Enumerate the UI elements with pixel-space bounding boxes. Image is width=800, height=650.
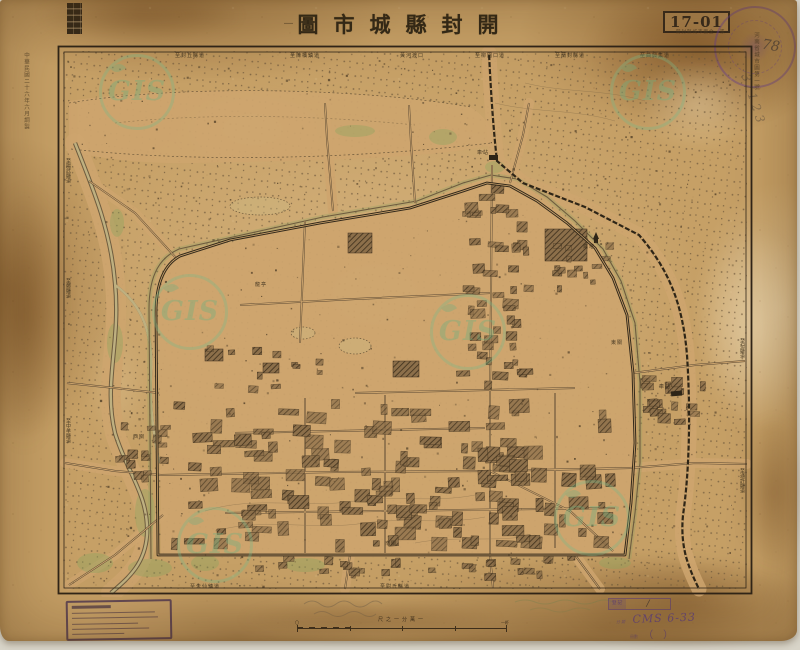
map-label: 至蘭封縣道 — [555, 52, 585, 59]
pencil-annotation-number: 78 — [761, 37, 781, 56]
catalog-row-label: 分類 — [616, 619, 626, 624]
map-canvas: 至封丘縣道至陳橋鎮道黃河渡口至柳園口道至蘭封縣道至曲興集道至陽武縣道至鄭縣道至中… — [55, 43, 755, 597]
map-label: 西關 — [133, 433, 145, 440]
map-label: 至柳園口道 — [475, 52, 505, 59]
map-label: 至曲興集道 — [640, 52, 670, 59]
left-margin-imprint: 中華民國二十六年六月調製 — [22, 52, 30, 130]
catalog-row-value: CMS 6-33 — [632, 611, 696, 626]
library-seal-stamp — [67, 3, 82, 34]
catalog-row-value: （ ） — [643, 630, 673, 641]
catalog-stamp-row: 登記 ∕ — [608, 598, 671, 610]
map-drawing — [55, 43, 755, 597]
catalog-row-label: 冊數 — [630, 634, 638, 639]
catalog-row-value: ∕ — [626, 599, 670, 609]
accession-stamp-box — [66, 599, 173, 641]
map-label: 至封丘縣道 — [175, 52, 205, 59]
catalog-stamp-row: 冊數 （ ） — [630, 626, 696, 641]
map-label: 鐵塔 — [583, 243, 595, 250]
map-title: 圖市城縣封開 — [298, 12, 514, 37]
title-dash: — — [284, 18, 294, 29]
map-title-row: —圖市城縣封開 — [284, 9, 514, 39]
map-label: 龍亭 — [255, 281, 267, 288]
map-label: 至通許縣道 — [739, 468, 746, 493]
catalog-stamp: 登記 ∕ 分類 CMS 6-33 冊數 （ ） — [608, 589, 696, 641]
map-label: 車站 — [477, 149, 489, 156]
catalog-stamp-row: 分類 CMS 6-33 — [616, 611, 696, 627]
map-label: 黃河渡口 — [400, 52, 424, 59]
map-label: 至朱仙鎮道 — [190, 583, 220, 590]
map-label: 車站 — [659, 383, 671, 390]
map-label: 至陽武縣道 — [65, 158, 72, 183]
map-label: 至陳橋鎮道 — [290, 52, 320, 59]
map-label: 東關 — [611, 339, 623, 346]
map-label: 南關 — [385, 540, 397, 547]
map-label: 至尉氏縣道 — [380, 583, 410, 590]
catalog-row-label: 登記 — [609, 599, 626, 609]
map-paper-sheet: —圖市城縣封開 17-01 開封縣城市圖全一張 78 3/123 中華民國二十六… — [0, 0, 797, 641]
map-label: 至杞縣道 — [739, 338, 746, 358]
map-label: 至鄭縣道 — [65, 278, 72, 298]
map-label: 至中牟縣道 — [65, 418, 72, 443]
